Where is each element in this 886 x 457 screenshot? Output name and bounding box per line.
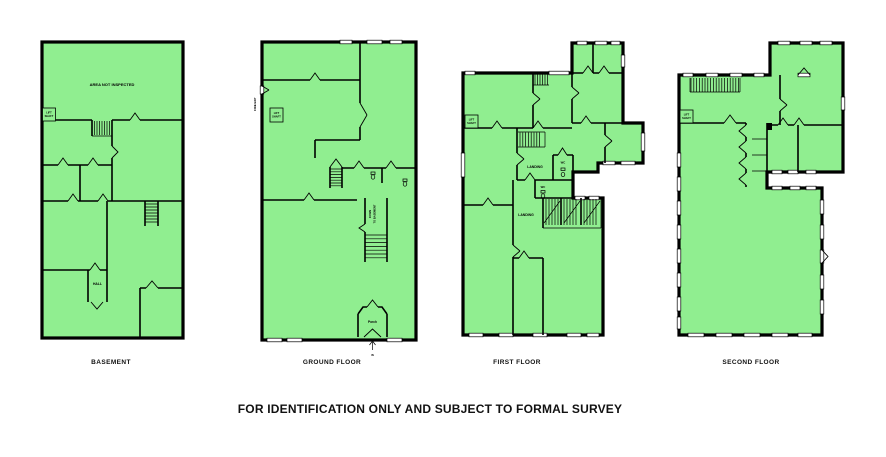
second-caption: SECOND FLOOR — [696, 359, 806, 366]
in-label: IN — [371, 353, 374, 357]
first-floor-plan: LIFT SHAFT LANDING LANDING WC WC — [455, 35, 650, 347]
ground-shaft-label: SHAFT — [272, 115, 281, 119]
to-basement-label: TO BASEMENT — [373, 204, 377, 223]
second-shaft-label: SHAFT — [682, 116, 691, 120]
ground-lift-label: LIFT — [274, 111, 280, 115]
basement-floorplan: LIFT SHAFT AREA NOT INSPECTED HALL — [34, 38, 188, 346]
ground-floor-plan: LIFT SHAFT FIRE EXIT DOWN TO BASEMENT Po… — [250, 38, 422, 360]
entrance-arrow-icon — [370, 341, 376, 350]
basement-shaft-label: SHAFT — [45, 114, 54, 118]
porch-label: Porch — [368, 320, 377, 324]
wc-lower-label: WC — [541, 185, 546, 189]
basement-lift-label: LIFT — [46, 111, 52, 115]
first-caption: FIRST FLOOR — [462, 359, 572, 366]
ground-floorplan: LIFT SHAFT FIRE EXIT DOWN TO BASEMENT Po… — [250, 38, 422, 360]
area-not-inspected-label: AREA NOT INSPECTED — [90, 82, 135, 87]
fire-exit-label: FIRE EXIT — [253, 97, 257, 111]
second-floor-plan: LIFT SHAFT — [668, 35, 853, 347]
second-lift-label: LIFT — [684, 113, 690, 117]
second-floorplan: LIFT SHAFT — [668, 35, 853, 347]
first-outer-walls — [463, 43, 643, 335]
first-lift-label: LIFT — [469, 118, 475, 122]
basement-caption: BASEMENT — [56, 359, 166, 366]
ground-caption: GROUND FLOOR — [277, 359, 387, 366]
first-shaft-label: SHAFT — [467, 121, 476, 125]
basement-plan: LIFT SHAFT AREA NOT INSPECTED HALL — [34, 38, 188, 346]
hall-label: HALL — [93, 282, 102, 286]
ground-outer-walls — [262, 42, 416, 340]
landing-lower-label: LANDING — [518, 213, 534, 217]
document-title: FOR IDENTIFICATION ONLY AND SUBJECT TO F… — [130, 402, 730, 416]
first-floorplan: LIFT SHAFT LANDING LANDING WC WC — [455, 35, 650, 347]
landing-upper-label: LANDING — [527, 165, 543, 169]
second-outer-walls — [679, 43, 843, 335]
down-label: DOWN — [368, 210, 372, 218]
floorplan-sheet: LIFT SHAFT AREA NOT INSPECTED HALL BASEM… — [0, 0, 886, 457]
wc-upper-label: WC — [561, 161, 566, 165]
